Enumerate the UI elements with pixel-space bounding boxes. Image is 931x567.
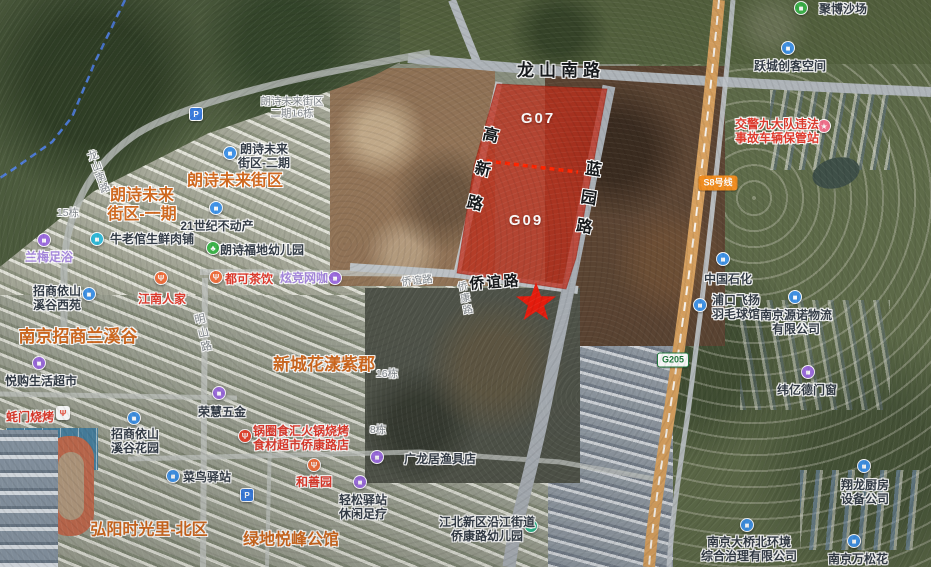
restaurant-icon[interactable]: Ψ <box>154 271 168 285</box>
bun-shop-icon[interactable]: Ψ <box>307 458 321 472</box>
kindergarten-icon[interactable]: ♣ <box>206 241 220 255</box>
poi-label[interactable]: 悦购生活超市 <box>5 374 77 388</box>
building-icon[interactable]: ■ <box>209 201 223 215</box>
building-icon[interactable]: ■ <box>781 41 795 55</box>
badminton-icon[interactable]: ■ <box>693 298 707 312</box>
poi-label[interactable]: 菜鸟驿站 <box>183 470 231 484</box>
building-icon[interactable]: ■ <box>847 534 861 548</box>
poi-label[interactable]: 南京大桥北环境综合治理有限公司 <box>701 535 797 563</box>
road-label: 高新路 <box>458 124 497 230</box>
estate-label[interactable]: 新城花漾紫郡 <box>273 355 375 375</box>
parcel-station-icon[interactable]: ■ <box>166 469 180 483</box>
estate-label[interactable]: 朗诗未来街区-一期 <box>107 187 176 225</box>
road-label: 8栋 <box>370 424 386 436</box>
road-label: 朗诗未来街区二期16栋 <box>261 96 324 121</box>
labels-layer: 龙山南路高新路蓝园路侨谊路侨谊路侨康路明山路龙山南路朗诗未来街区二期16栋15栋… <box>0 0 931 567</box>
tea-cup-icon[interactable]: Ψ <box>209 270 223 284</box>
poi-label[interactable]: 牛老倌生鲜肉铺 <box>110 232 194 246</box>
road-label: 龙山南路 <box>517 61 605 81</box>
parcel-code-label: G09 <box>509 212 543 230</box>
poi-label[interactable]: 江北新区沿江街道侨康路幼儿园 <box>439 515 535 543</box>
poi-label[interactable]: 交警九大队违法事故车辆保管站 <box>735 117 819 145</box>
poi-label[interactable]: 朗诗未来街区-二期 <box>238 142 290 170</box>
building-icon[interactable]: ■ <box>794 1 808 15</box>
road-label: 15栋 <box>57 207 79 219</box>
building-icon[interactable]: ■ <box>740 518 754 532</box>
fishing-shop-icon[interactable]: ■ <box>370 450 384 464</box>
poi-label[interactable]: 浦口飞扬羽毛球馆 <box>712 293 760 321</box>
poi-label[interactable]: 翔龙厨房设备公司 <box>841 478 889 506</box>
estate-label[interactable]: 南京招商兰溪谷 <box>19 327 138 347</box>
estate-label[interactable]: 弘阳时光里-北区 <box>90 522 207 541</box>
estate-label[interactable]: 朗诗未来街区 <box>187 173 283 192</box>
poi-label[interactable]: 纬亿德门窗 <box>777 383 837 397</box>
metro-line-badge: S8号线 <box>698 176 737 191</box>
foot-spa-icon[interactable]: ■ <box>37 233 51 247</box>
supermarket-icon[interactable]: ■ <box>32 356 46 370</box>
poi-label[interactable]: 炫竞网咖 <box>280 271 328 285</box>
shop-icon[interactable]: ■ <box>90 232 104 246</box>
road-label: 16栋 <box>376 368 398 380</box>
gas-station-icon[interactable]: ■ <box>716 252 730 266</box>
road-label: 蓝园路 <box>570 159 599 247</box>
internet-cafe-icon[interactable]: ■ <box>328 271 342 285</box>
foot-spa-icon[interactable]: ■ <box>353 475 367 489</box>
poi-label[interactable]: 南京源诺物流有限公司 <box>760 308 832 336</box>
poi-label[interactable]: 聚博沙场 <box>819 2 867 16</box>
satellite-map[interactable]: 龙山南路高新路蓝园路侨谊路侨谊路侨康路明山路龙山南路朗诗未来街区二期16栋15栋… <box>0 0 931 567</box>
building-icon[interactable]: ■ <box>82 287 96 301</box>
hardware-icon[interactable]: ■ <box>212 386 226 400</box>
building-icon[interactable]: ■ <box>857 459 871 473</box>
poi-label[interactable]: 都可茶饮 <box>225 272 273 286</box>
star-icon[interactable]: ★ <box>817 119 831 133</box>
hotpot-fork-icon[interactable]: Ψ <box>238 429 252 443</box>
poi-label[interactable]: 轻松驿站休闲足疗 <box>339 493 387 521</box>
building-icon[interactable]: ■ <box>223 146 237 160</box>
poi-label[interactable]: 江南人家 <box>138 292 186 306</box>
parcel-code-label: G07 <box>521 110 555 128</box>
poi-label[interactable]: 蚝门烧烤 <box>6 410 54 424</box>
building-icon[interactable]: ■ <box>127 411 141 425</box>
poi-label[interactable]: 招商依山溪谷花园 <box>111 427 159 455</box>
poi-label[interactable]: 广龙居渔具店 <box>404 452 476 466</box>
building-icon[interactable]: ■ <box>788 290 802 304</box>
poi-label[interactable]: 南京万松花 <box>828 552 888 566</box>
poi-label[interactable]: 招商依山溪谷西苑 <box>33 284 81 312</box>
parking-icon[interactable]: P <box>240 488 254 502</box>
bbq-fork-icon[interactable]: Ψ <box>56 406 70 420</box>
poi-label[interactable]: 中国石化 <box>704 272 752 286</box>
poi-label[interactable]: 朗诗福地幼儿园 <box>220 243 304 257</box>
lock-icon[interactable]: ■ <box>801 365 815 379</box>
poi-label[interactable]: 兰梅足浴 <box>25 250 73 264</box>
highway-badge: G205 <box>657 353 689 368</box>
road-label: 侨谊路 <box>469 272 521 293</box>
estate-label[interactable]: 绿地悦峰公馆 <box>243 532 339 551</box>
road-label: 明山路 <box>192 312 212 355</box>
parking-icon[interactable]: P <box>189 107 203 121</box>
poi-label[interactable]: 跃城创客空间 <box>754 59 826 73</box>
poi-label[interactable]: 和善园 <box>296 475 332 489</box>
poi-label[interactable]: 锅圈食汇火锅烧烤食材超市侨康路店 <box>253 424 349 452</box>
poi-label[interactable]: 荣慧五金 <box>198 405 246 419</box>
road-label: 侨谊路 <box>401 273 434 289</box>
